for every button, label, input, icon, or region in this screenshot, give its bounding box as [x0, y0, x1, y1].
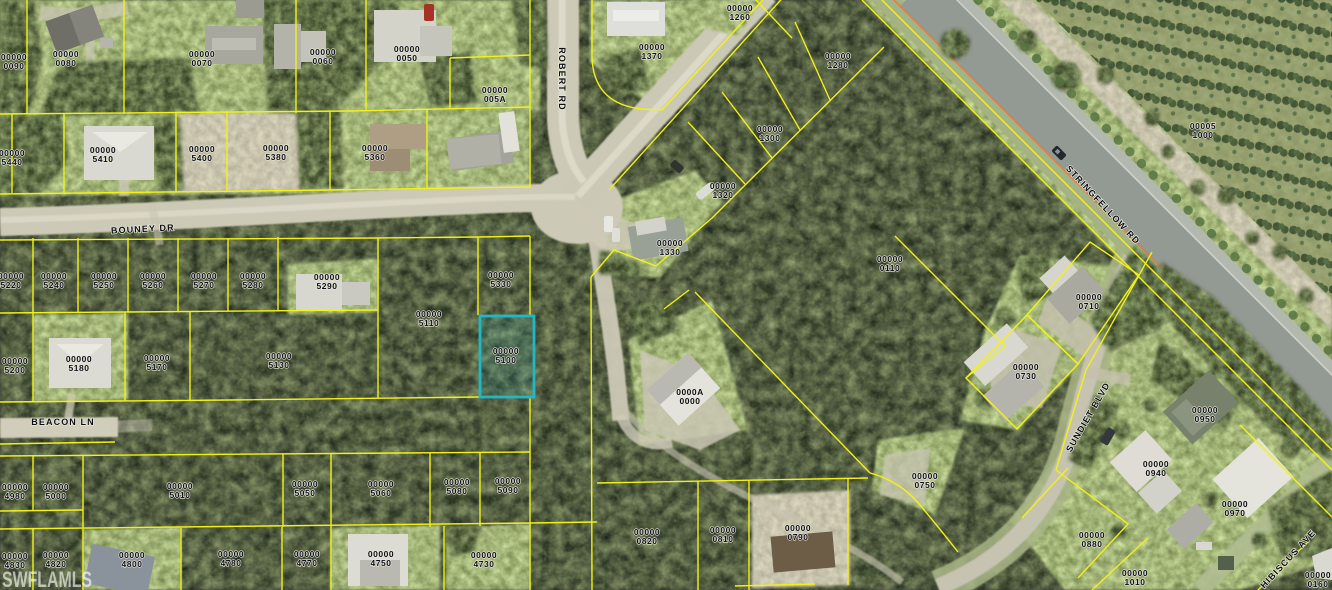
svg-text:000004780: 000004780 [218, 549, 244, 568]
svg-text:00000005A: 00000005A [482, 85, 508, 104]
svg-text:000005290: 000005290 [314, 272, 340, 291]
svg-text:000005080: 000005080 [444, 477, 470, 496]
svg-text:000000710: 000000710 [1076, 292, 1102, 311]
svg-text:000000080: 000000080 [53, 49, 79, 68]
svg-text:0000A0000: 0000A0000 [676, 387, 704, 406]
svg-text:000000110: 000000110 [877, 254, 903, 273]
svg-text:000001370: 000001370 [639, 42, 665, 61]
svg-text:000005380: 000005380 [263, 143, 289, 162]
svg-text:000001320: 000001320 [710, 181, 736, 200]
svg-text:000005400: 000005400 [189, 144, 215, 163]
svg-text:000000160: 000000160 [1305, 570, 1331, 589]
svg-text:000005280: 000005280 [240, 271, 266, 290]
svg-text:000001260: 000001260 [727, 3, 753, 22]
svg-text:000005200: 000005200 [2, 356, 28, 375]
svg-text:000000050: 000000050 [394, 44, 420, 63]
svg-text:000005050: 000005050 [292, 479, 318, 498]
svg-text:000000880: 000000880 [1079, 530, 1105, 549]
svg-text:000000090: 000000090 [1, 52, 27, 71]
svg-text:000001330: 000001330 [657, 238, 683, 257]
svg-text:000000810: 000000810 [710, 525, 736, 544]
svg-text:000001300: 000001300 [757, 124, 783, 143]
svg-text:000000060: 000000060 [310, 47, 336, 66]
svg-text:000001280: 000001280 [825, 51, 851, 70]
svg-text:BEACON LN: BEACON LN [31, 417, 94, 427]
svg-text:000000940: 000000940 [1143, 459, 1169, 478]
svg-text:000000970: 000000970 [1222, 499, 1248, 518]
svg-text:000000820: 000000820 [634, 527, 660, 546]
svg-text:000005180: 000005180 [66, 354, 92, 373]
svg-text:000005240: 000005240 [41, 271, 67, 290]
svg-text:000005000: 000005000 [43, 482, 69, 501]
svg-text:000005170: 000005170 [144, 353, 170, 372]
svg-text:000005360: 000005360 [362, 143, 388, 162]
svg-text:000005410: 000005410 [90, 145, 116, 164]
svg-text:000051000: 000051000 [1190, 121, 1216, 140]
svg-text:000005330: 000005330 [488, 270, 514, 289]
svg-text:000004730: 000004730 [471, 550, 497, 569]
svg-text:000005270: 000005270 [191, 271, 217, 290]
svg-text:000005130: 000005130 [266, 351, 292, 370]
svg-text:000005220: 000005220 [0, 271, 24, 290]
svg-text:000004800: 000004800 [119, 550, 145, 569]
svg-text:000004980: 000004980 [2, 482, 28, 501]
svg-text:000005060: 000005060 [368, 479, 394, 498]
svg-text:000005260: 000005260 [140, 271, 166, 290]
svg-text:000005090: 000005090 [495, 476, 521, 495]
svg-text:ROBERT RD: ROBERT RD [557, 47, 567, 110]
svg-text:000000790: 000000790 [785, 523, 811, 542]
svg-text:000005250: 000005250 [91, 271, 117, 290]
svg-text:000004770: 000004770 [294, 549, 320, 568]
svg-text:000000730: 000000730 [1013, 362, 1039, 381]
svg-text:000005100: 000005100 [493, 346, 519, 365]
svg-text:000005440: 000005440 [0, 148, 25, 167]
svg-text:000000750: 000000750 [912, 471, 938, 490]
svg-text:000005010: 000005010 [167, 481, 193, 500]
svg-text:000000070: 000000070 [189, 49, 215, 68]
svg-text:SWFLAMLS: SWFLAMLS [2, 567, 92, 590]
svg-text:000005110: 000005110 [416, 309, 442, 328]
svg-text:000001010: 000001010 [1122, 568, 1148, 587]
svg-text:000004750: 000004750 [368, 549, 394, 568]
svg-text:000000950: 000000950 [1192, 405, 1218, 424]
